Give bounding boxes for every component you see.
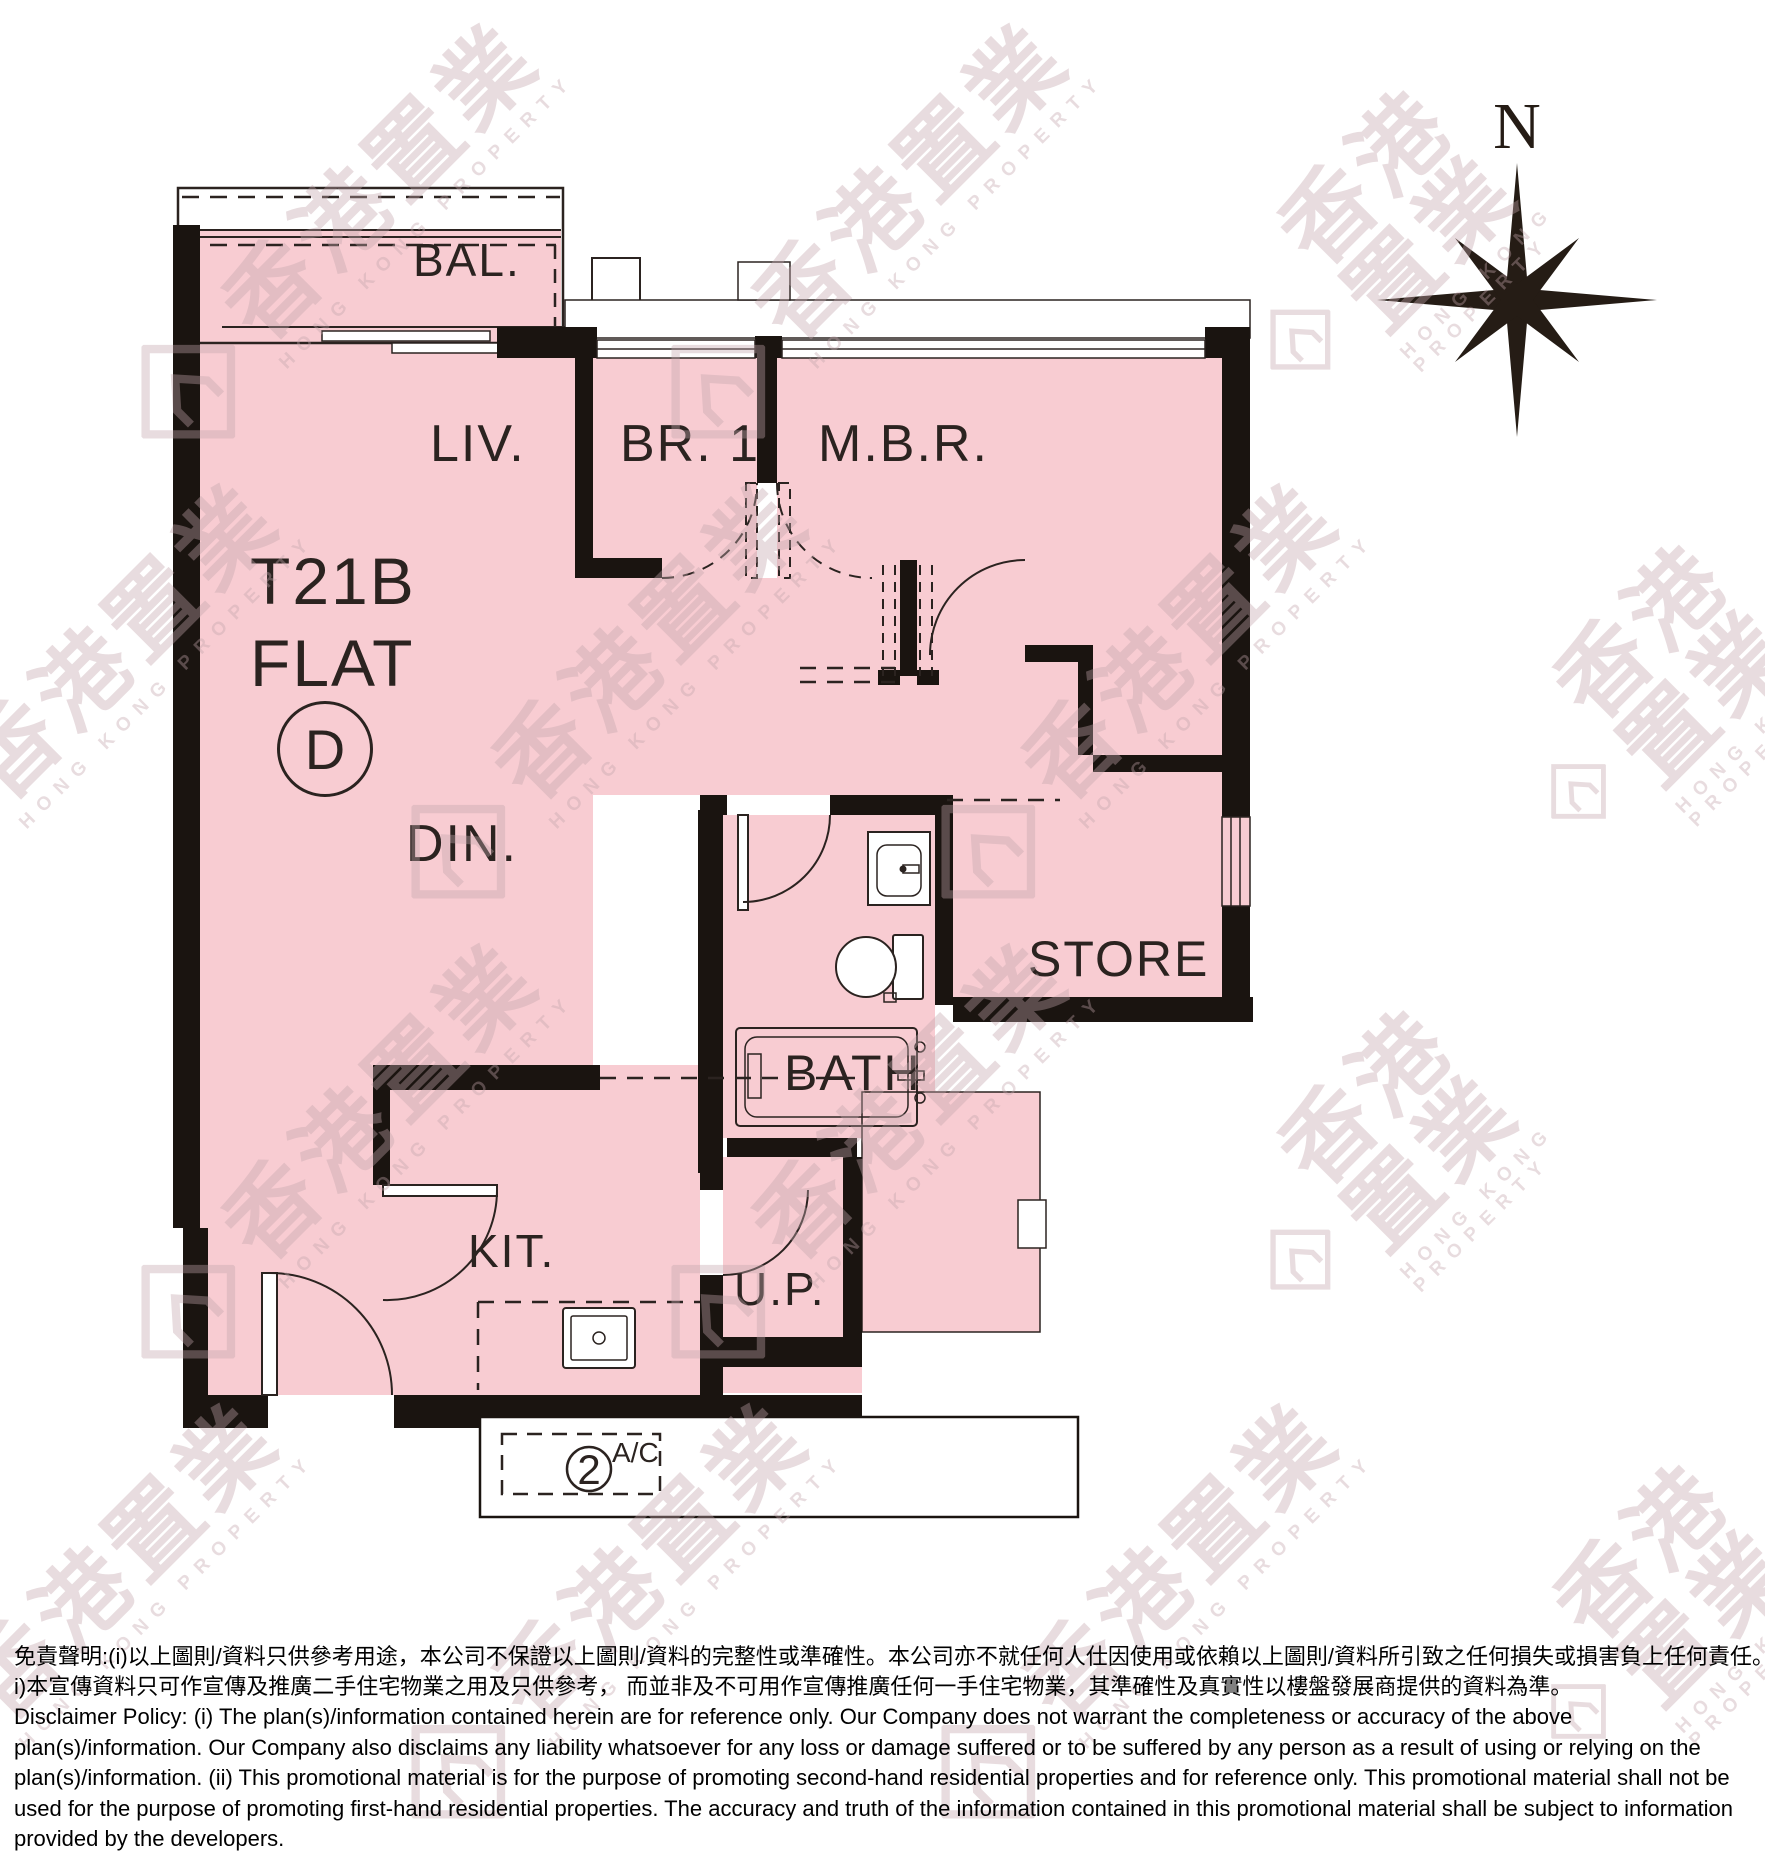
label-balcony: BAL.: [413, 237, 521, 283]
label-tower: T21B: [250, 548, 416, 614]
side-platform: [862, 1092, 1040, 1332]
label-master-bedroom: M.B.R.: [818, 418, 989, 470]
exterior-strip: [565, 262, 1250, 338]
label-flat-word: FLAT: [250, 630, 414, 696]
label-store: STORE: [1028, 934, 1209, 984]
north-star-icon: [1377, 163, 1657, 437]
label-kitchen: KIT.: [468, 1228, 555, 1274]
entrance-door-leaf: [262, 1273, 277, 1395]
window-store: [1222, 817, 1250, 906]
basin-icon: [868, 832, 930, 905]
compass-rose: N: [1377, 90, 1657, 437]
kitchen-sink-icon: [563, 1308, 635, 1368]
sliding-door-panel: [322, 331, 490, 341]
compass-north-label: N: [1493, 90, 1541, 163]
label-living: LIV.: [430, 418, 526, 470]
ac-number: 2: [577, 1446, 600, 1493]
ac-platform: 2 A/C: [480, 1417, 1078, 1517]
kitchen-door-leaf: [383, 1185, 497, 1196]
label-bath: BATH: [784, 1048, 922, 1098]
label-dining: DIN.: [406, 818, 518, 870]
disclaimer-en: Disclaimer Policy: (i) The plan(s)/infor…: [14, 1702, 1754, 1855]
disclaimer-block: 免責聲明:(i)以上圖則/資料只供參考用途，本公司不保證以上圖則/資料的完整性或…: [14, 1642, 1754, 1855]
label-utility-platform: U.P.: [734, 1266, 826, 1312]
ac-label: A/C: [612, 1437, 659, 1468]
disclaimer-zh-line1: 免責聲明:(i)以上圖則/資料只供參考用途，本公司不保證以上圖則/資料的完整性或…: [14, 1642, 1754, 1672]
disclaimer-zh-line2: i)本宣傳資料只可作宣傳及推廣二手住宅物業之用及只供參考， 而並非及不可用作宣傳…: [14, 1672, 1754, 1702]
floor-plan: 2 A/C N: [0, 0, 1765, 1874]
label-flat-unit: D: [305, 717, 345, 782]
flat-unit-badge: D: [277, 701, 373, 797]
toilet-icon: [836, 935, 923, 1002]
label-bedroom1: BR. 1: [620, 418, 760, 470]
bath-door-leaf: [738, 815, 748, 910]
floor-plan-page: 2 A/C N BAL. LIV. BR. 1 M.B.R. T21B FLAT…: [0, 0, 1765, 1874]
